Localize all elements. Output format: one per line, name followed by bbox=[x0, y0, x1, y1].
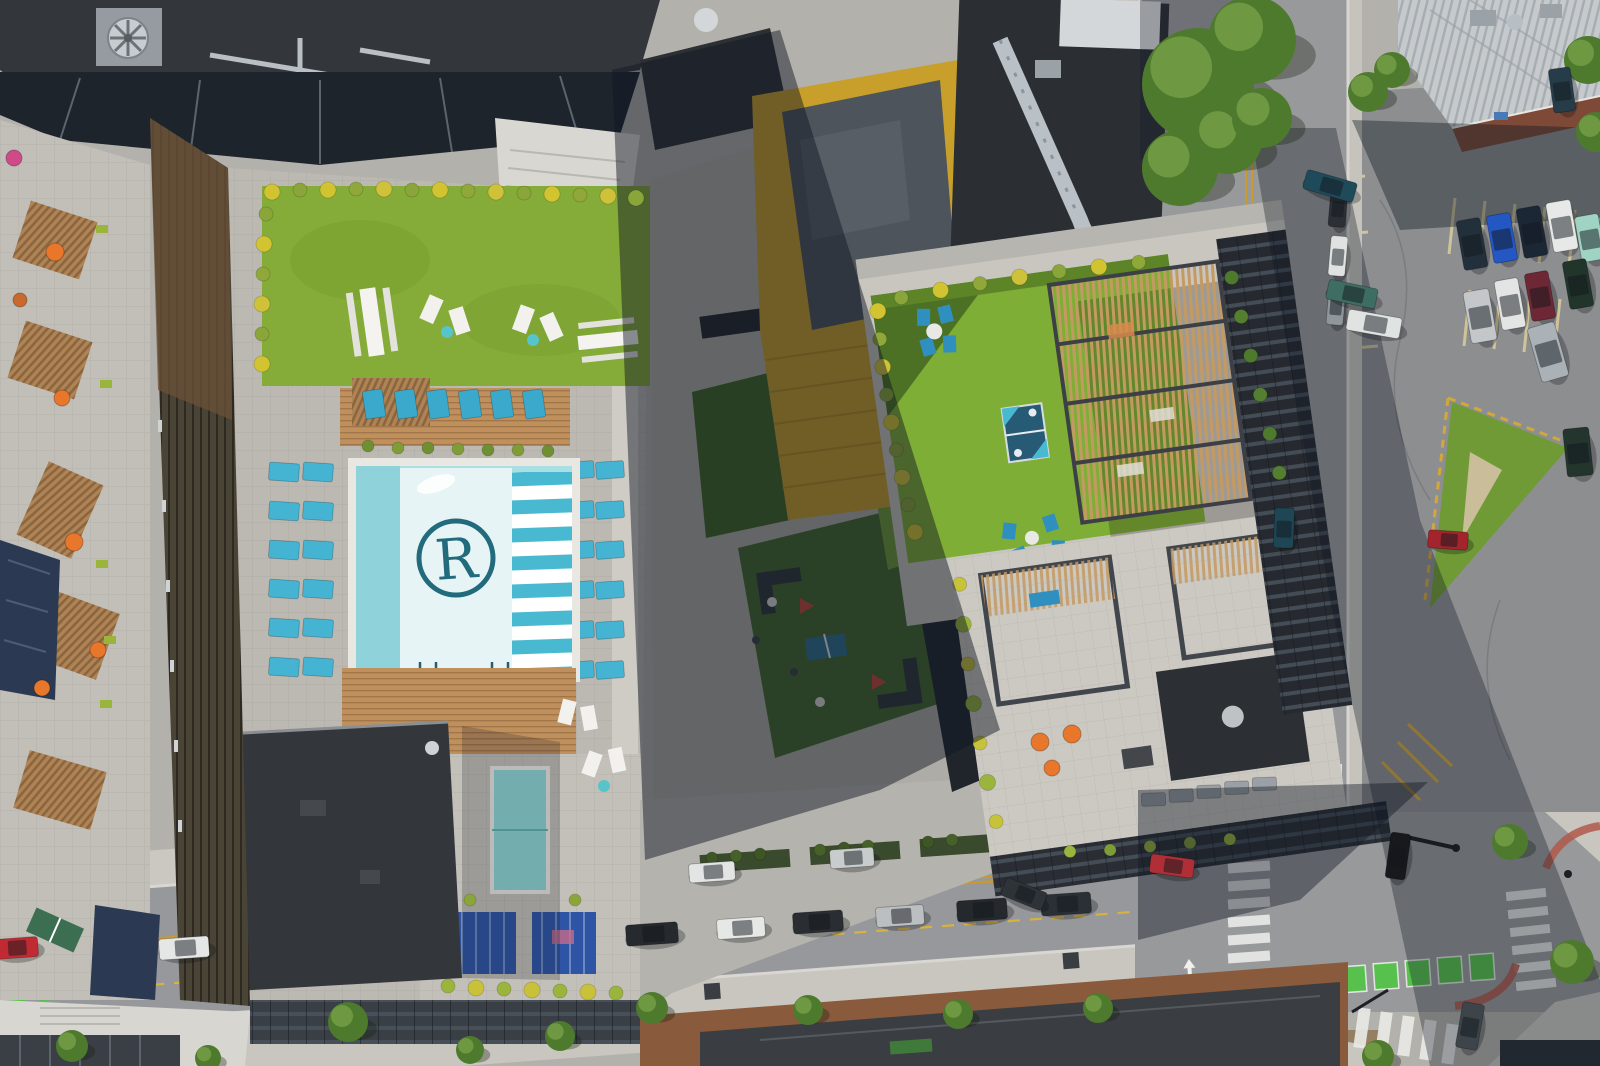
car-glass bbox=[174, 939, 196, 956]
roof-vent-cylinder bbox=[694, 8, 718, 32]
lounger-cushion bbox=[458, 389, 482, 420]
car-glass bbox=[642, 925, 665, 942]
shrub bbox=[259, 207, 273, 221]
lounger bbox=[595, 661, 624, 680]
lounger-cushion bbox=[595, 461, 624, 480]
lounger bbox=[595, 501, 624, 520]
shrub bbox=[544, 186, 560, 202]
umbrella bbox=[1044, 760, 1060, 776]
car-glass bbox=[1552, 81, 1571, 102]
umbrella bbox=[65, 533, 83, 551]
umbrella bbox=[54, 390, 70, 406]
left-building-complex: R bbox=[0, 0, 660, 1066]
shrub bbox=[362, 440, 374, 452]
car-glass bbox=[891, 908, 912, 924]
tree-highlight bbox=[1568, 40, 1594, 66]
ping-pong-table bbox=[1002, 403, 1049, 462]
pool-shallow-edge bbox=[356, 466, 400, 674]
shrub bbox=[553, 984, 567, 998]
car-glass bbox=[1276, 521, 1292, 538]
glass-canopy bbox=[90, 905, 160, 1000]
shrub bbox=[264, 184, 280, 200]
lounger bbox=[362, 389, 386, 420]
lounger-cushion bbox=[362, 389, 386, 420]
shrub bbox=[814, 844, 826, 856]
rooftop-amenity-deck: R bbox=[205, 168, 650, 1006]
tree-highlight bbox=[1215, 3, 1263, 51]
shrub bbox=[628, 190, 644, 206]
car-glass bbox=[1460, 1016, 1480, 1038]
shrub bbox=[580, 984, 596, 1000]
tree-highlight bbox=[458, 1038, 473, 1053]
tree-highlight bbox=[638, 994, 656, 1012]
shrub bbox=[524, 982, 540, 998]
lounger bbox=[522, 389, 546, 420]
lounger-cushion bbox=[268, 501, 299, 521]
lounger-cushion bbox=[595, 621, 624, 640]
lounger-cushion bbox=[522, 389, 546, 420]
shrub bbox=[254, 296, 270, 312]
shrub bbox=[256, 267, 270, 281]
tree-highlight bbox=[331, 1005, 353, 1027]
shrub bbox=[349, 182, 363, 196]
car-glass bbox=[703, 864, 723, 879]
lounger-cushion bbox=[268, 462, 299, 482]
car-glass bbox=[808, 913, 830, 930]
tree-highlight bbox=[1377, 55, 1397, 75]
lounger bbox=[268, 618, 299, 638]
lounger-cushion bbox=[490, 389, 514, 420]
tree-highlight bbox=[1553, 943, 1577, 967]
shrub bbox=[422, 442, 434, 454]
lounger-cushion bbox=[268, 540, 299, 560]
lounger-cushion bbox=[394, 389, 418, 420]
side-table bbox=[598, 780, 610, 792]
rooftop-unit bbox=[1540, 4, 1562, 18]
car-glass bbox=[1163, 858, 1183, 874]
shrub bbox=[573, 188, 587, 202]
shrub bbox=[922, 836, 934, 848]
shrub bbox=[452, 443, 464, 455]
umbrella bbox=[1063, 725, 1081, 743]
shrub bbox=[754, 848, 766, 860]
tree-highlight bbox=[547, 1023, 564, 1040]
shrub bbox=[512, 444, 524, 456]
car-glass bbox=[732, 920, 753, 936]
lounger bbox=[268, 501, 299, 521]
lounger-cushion bbox=[426, 389, 450, 420]
left-terrace-rooftops bbox=[0, 120, 160, 1000]
lounger-cushion bbox=[302, 618, 333, 638]
shrub bbox=[432, 182, 448, 198]
lounger-cushion bbox=[302, 501, 333, 521]
tree-highlight bbox=[945, 1001, 962, 1018]
lounger bbox=[302, 501, 333, 521]
umbrella bbox=[13, 293, 27, 307]
rooftop-unit bbox=[1470, 10, 1496, 26]
lounger bbox=[302, 462, 333, 482]
shrub bbox=[464, 894, 476, 906]
shrub bbox=[376, 181, 392, 197]
car-glass bbox=[1461, 233, 1483, 257]
car-glass bbox=[1551, 215, 1574, 239]
lounger-cushion bbox=[595, 541, 624, 560]
tree-highlight bbox=[1237, 93, 1270, 126]
lounger bbox=[268, 462, 299, 482]
shrub bbox=[255, 327, 269, 341]
lounger bbox=[302, 657, 333, 677]
umbrella bbox=[1031, 733, 1049, 751]
car-glass bbox=[972, 901, 994, 918]
shrub bbox=[320, 182, 336, 198]
car-glass bbox=[1468, 305, 1492, 330]
lounger bbox=[595, 621, 624, 640]
shrub bbox=[468, 980, 484, 996]
lounger bbox=[394, 389, 418, 420]
aerial-drone-photo: R bbox=[0, 0, 1600, 1066]
lounger-cushion bbox=[595, 661, 624, 680]
tree-highlight bbox=[58, 1032, 76, 1050]
lounger-cushion bbox=[268, 657, 299, 677]
tree-highlight bbox=[1148, 136, 1190, 178]
tree-highlight bbox=[197, 1047, 211, 1061]
car-glass bbox=[1567, 442, 1590, 464]
car-glass bbox=[1331, 248, 1344, 266]
lounger bbox=[426, 389, 450, 420]
tree-planter bbox=[1062, 952, 1079, 969]
car-glass bbox=[844, 850, 863, 865]
car-glass bbox=[1579, 228, 1600, 250]
main-pool: R bbox=[348, 458, 580, 684]
car-glass bbox=[1491, 228, 1513, 251]
car-glass bbox=[1499, 293, 1521, 317]
lounger bbox=[268, 540, 299, 560]
lounger-cushion bbox=[268, 618, 299, 638]
lounger-cushion bbox=[595, 501, 624, 520]
lounger bbox=[595, 541, 624, 560]
lounger bbox=[268, 579, 299, 599]
tree-highlight bbox=[1495, 827, 1515, 847]
car-glass bbox=[1056, 895, 1078, 912]
side-table bbox=[441, 326, 453, 338]
shrub bbox=[730, 850, 742, 862]
shrub bbox=[609, 986, 623, 1000]
car-glass bbox=[1529, 286, 1551, 309]
tree-highlight bbox=[1199, 111, 1236, 148]
lounger bbox=[490, 389, 514, 420]
tree-highlight bbox=[1351, 75, 1373, 97]
lounger bbox=[595, 461, 624, 480]
car-glass bbox=[1567, 274, 1589, 297]
umbrella bbox=[46, 243, 64, 261]
coffee-table bbox=[1121, 745, 1153, 769]
tree-highlight bbox=[1364, 1042, 1382, 1060]
lounger bbox=[268, 657, 299, 677]
bronze-panel bbox=[150, 118, 232, 420]
roof-vent bbox=[360, 870, 380, 884]
car-glass bbox=[1440, 533, 1458, 547]
shrub bbox=[542, 445, 554, 457]
roof-pipe-cap bbox=[425, 741, 439, 755]
shrub bbox=[946, 834, 958, 846]
blue-tarp bbox=[1494, 112, 1508, 120]
shrub bbox=[392, 442, 404, 454]
car-glass bbox=[8, 940, 27, 956]
lounger-cushion bbox=[302, 657, 333, 677]
south-facade-windows bbox=[250, 1000, 640, 1044]
shrub bbox=[293, 183, 307, 197]
tree-highlight bbox=[1085, 995, 1102, 1012]
lounger bbox=[302, 618, 333, 638]
lounger bbox=[302, 540, 333, 560]
umbrella bbox=[6, 150, 22, 166]
lounger bbox=[595, 581, 624, 600]
lounger bbox=[302, 579, 333, 599]
shrub bbox=[461, 184, 475, 198]
shrub bbox=[497, 982, 511, 996]
roof-vent bbox=[1507, 14, 1523, 30]
umbrella bbox=[34, 680, 50, 696]
shrub bbox=[405, 183, 419, 197]
lounger-cushion bbox=[302, 540, 333, 560]
tree-highlight bbox=[1579, 115, 1600, 137]
aerial-scene: R bbox=[0, 0, 1600, 1066]
roof-vent bbox=[300, 800, 326, 816]
car-glass bbox=[1389, 847, 1407, 868]
annex-shadow bbox=[462, 726, 560, 980]
side-table bbox=[527, 334, 539, 346]
shrub bbox=[488, 184, 504, 200]
shrub bbox=[569, 894, 581, 906]
tree-highlight bbox=[1150, 36, 1212, 98]
rooftop-fan bbox=[96, 8, 162, 66]
shrub bbox=[256, 236, 272, 252]
lounger-cushion bbox=[268, 579, 299, 599]
tree-planter bbox=[704, 983, 721, 1000]
pool-stripe-lane bbox=[512, 472, 572, 668]
glass-canopy bbox=[0, 540, 60, 700]
lounger-cushion bbox=[302, 579, 333, 599]
shrub bbox=[441, 979, 455, 993]
lawn-mottle bbox=[290, 220, 430, 300]
shrub bbox=[517, 186, 531, 200]
pool-logo-letter: R bbox=[433, 526, 481, 594]
rooftop-unit bbox=[1035, 60, 1061, 78]
lounger-cushion bbox=[595, 581, 624, 600]
car-glass bbox=[1521, 221, 1543, 245]
shrub bbox=[482, 444, 494, 456]
shrub bbox=[254, 356, 270, 372]
tree-highlight bbox=[795, 997, 812, 1014]
lounger-cushion bbox=[302, 462, 333, 482]
shrub bbox=[600, 188, 616, 204]
umbrella bbox=[90, 642, 106, 658]
lounger bbox=[458, 389, 482, 420]
